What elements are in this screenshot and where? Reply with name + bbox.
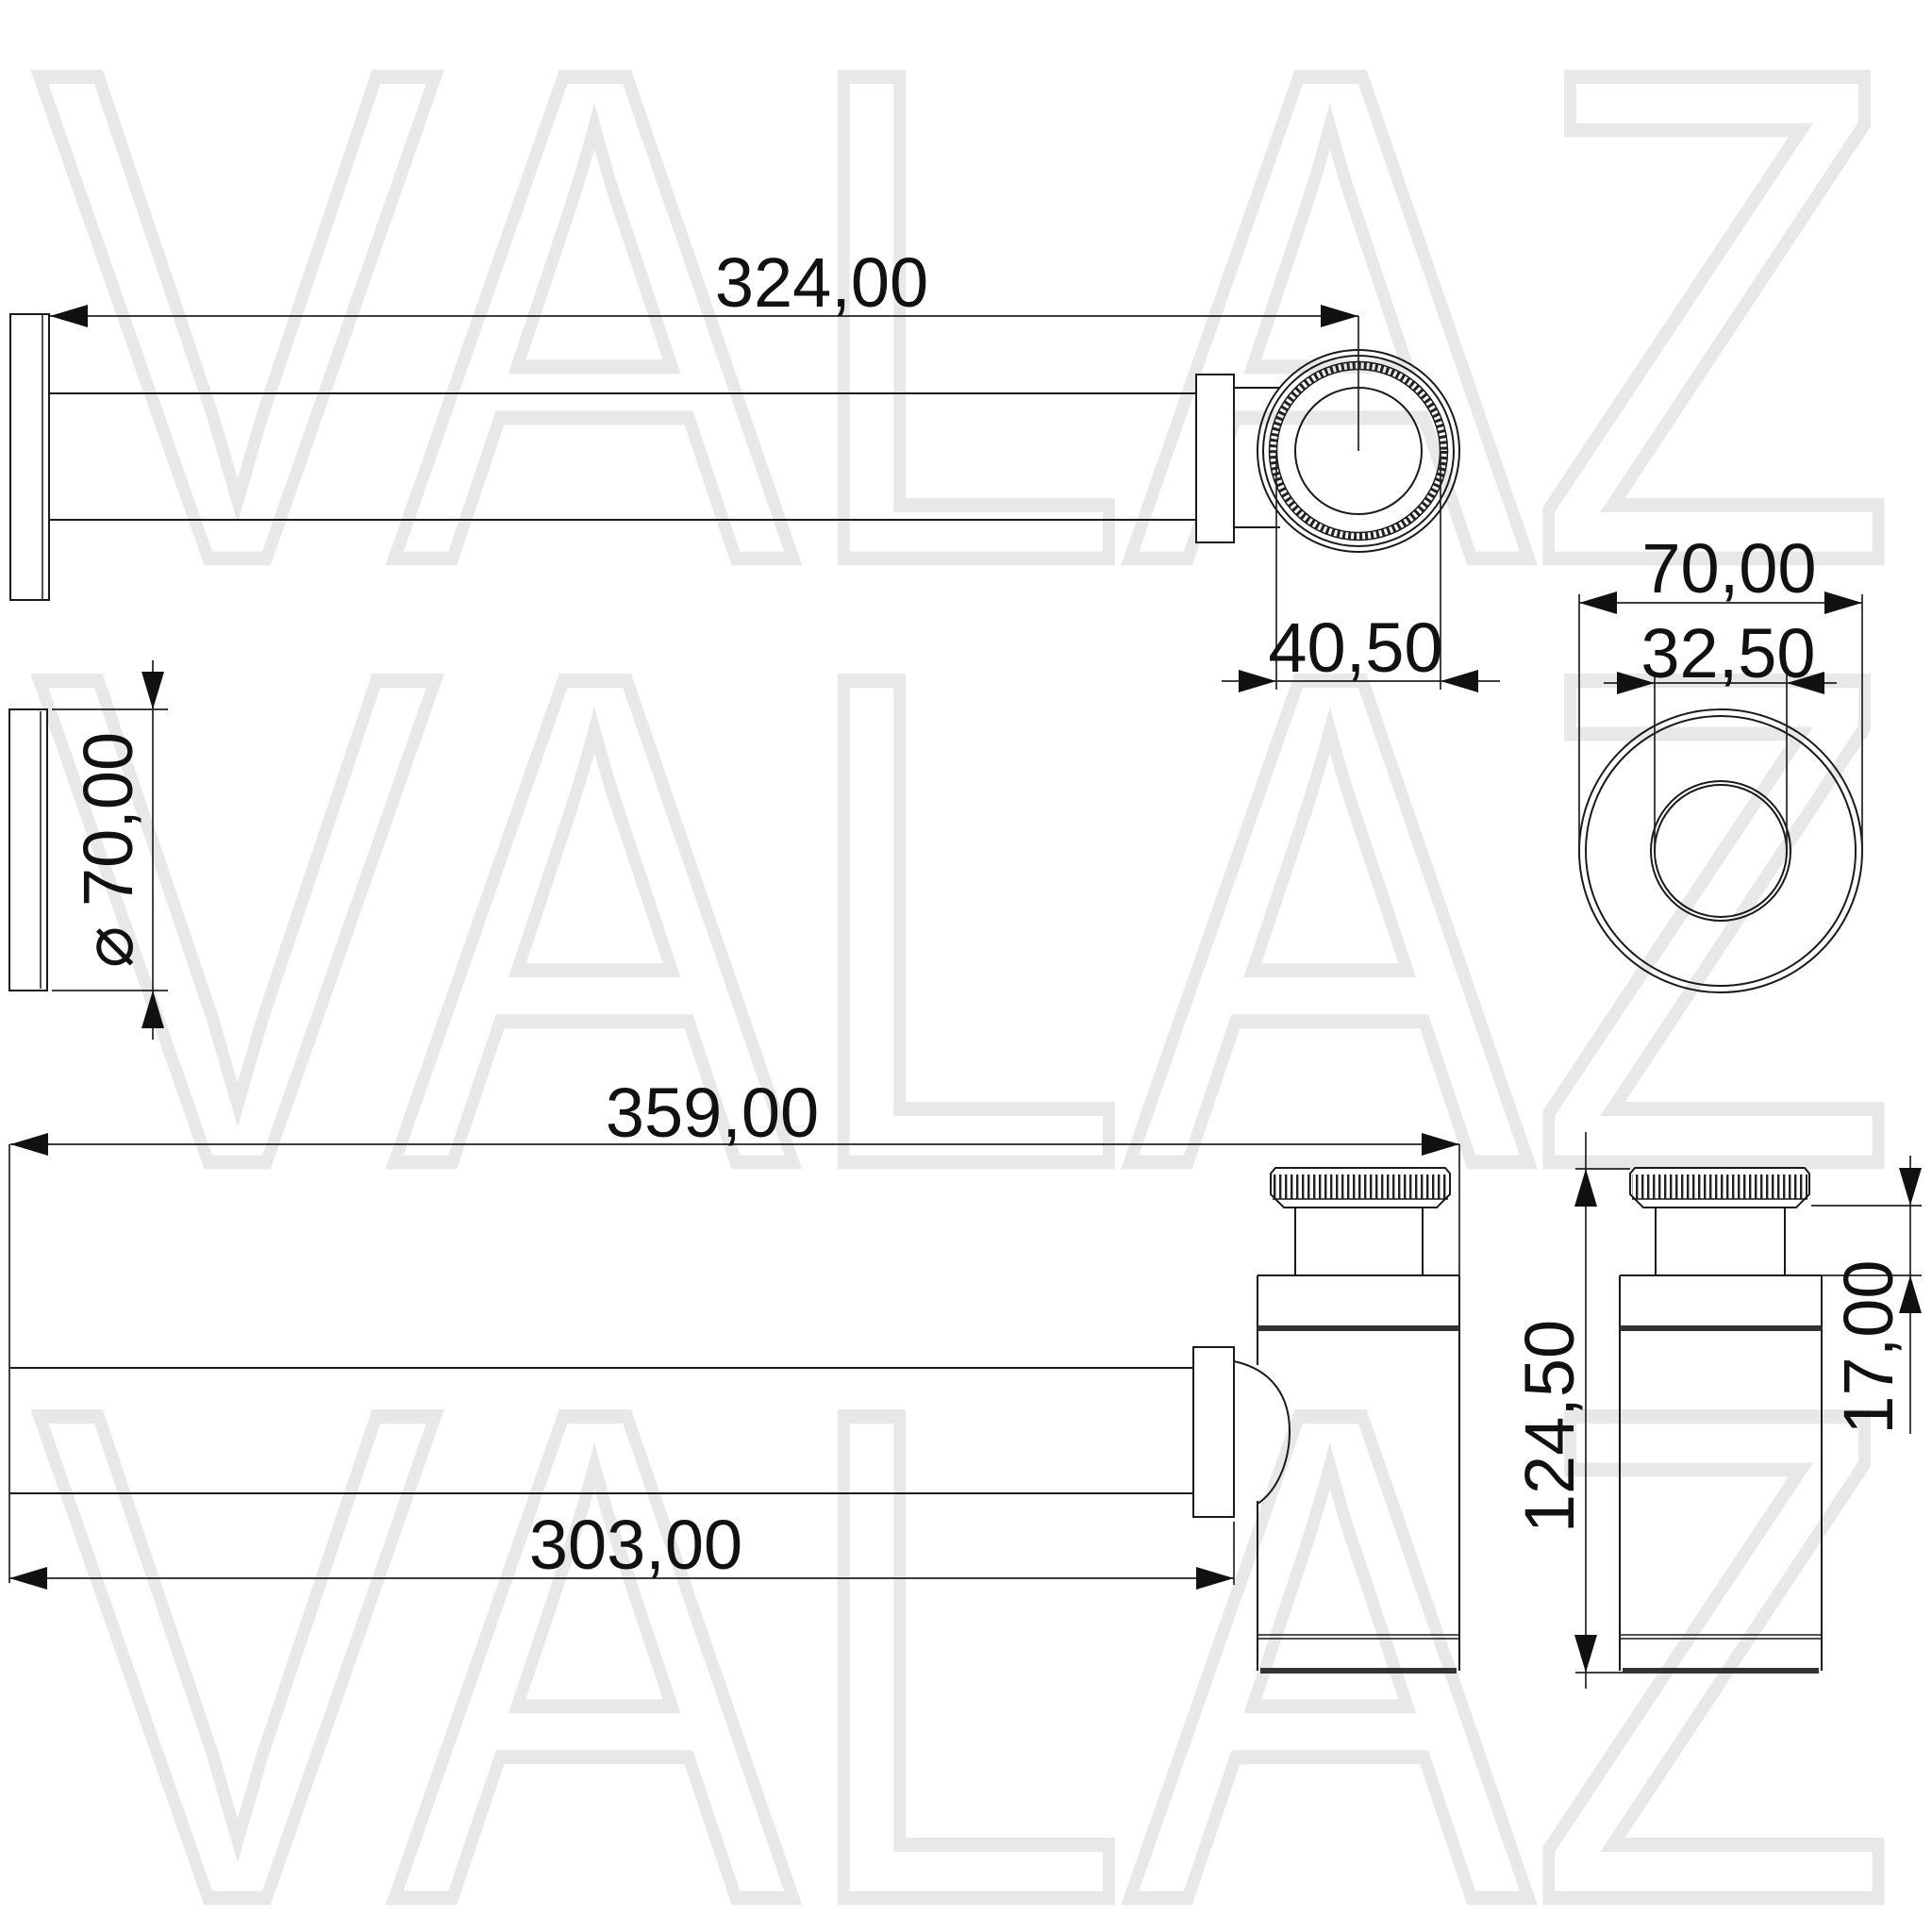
rosette-side-body	[9, 709, 47, 991]
dim-label-40-5: 40,50	[1268, 608, 1442, 687]
watermark: VALAZ VALAZ VALAZ	[37, 0, 1897, 1932]
arrowhead	[9, 1567, 47, 1590]
knurl-teeth-band	[1273, 1174, 1448, 1199]
wall-flange-plate	[10, 314, 49, 600]
knurl-teeth-band	[1632, 1174, 1807, 1199]
dim-label-70: 70,00	[1641, 529, 1816, 608]
dim-label-303: 303,00	[529, 1506, 742, 1584]
watermark-row-3: VALAZ	[37, 1265, 1897, 1932]
tube-collar	[1196, 375, 1234, 542]
dim-label-d70: ⌀ 70,00	[69, 732, 147, 968]
dim-label-324: 324,00	[715, 243, 928, 322]
arrowhead	[1899, 1168, 1922, 1206]
drawing-canvas: VALAZ VALAZ VALAZ 324,00	[0, 0, 1932, 1932]
dim-label-359: 359,00	[606, 1074, 819, 1152]
dim-label-32-5: 32,50	[1641, 614, 1815, 692]
watermark-row-2: VALAZ	[37, 529, 1897, 1311]
trap-tube-collar	[1193, 1347, 1234, 1517]
arrowhead	[10, 1133, 48, 1156]
dim-label-17: 17,00	[1829, 1259, 1907, 1434]
cad-drawing-page: VALAZ VALAZ VALAZ 324,00	[0, 0, 1932, 1932]
dim-label-124-5: 124,50	[1510, 1320, 1589, 1533]
